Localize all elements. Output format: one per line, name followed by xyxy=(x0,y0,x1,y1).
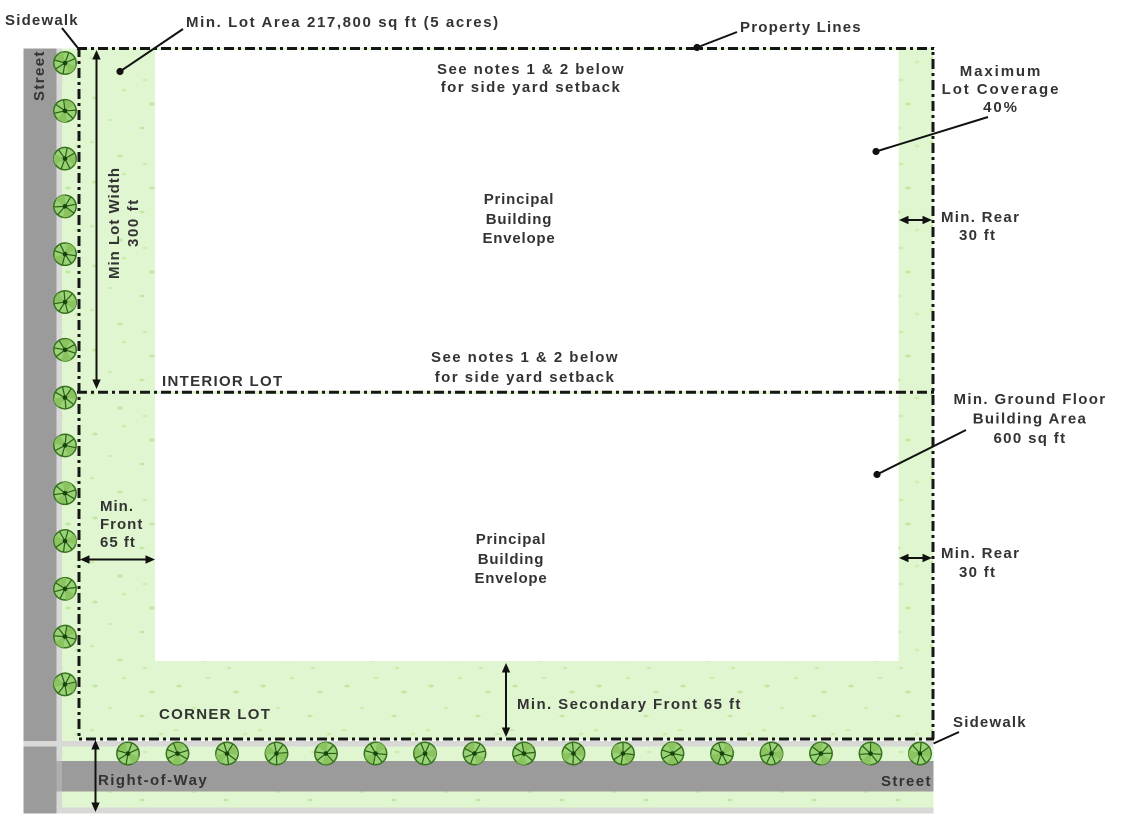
svg-text:Right-of-Way: Right-of-Way xyxy=(98,772,208,789)
svg-text:PrincipalBuildingEnvelope: PrincipalBuildingEnvelope xyxy=(482,191,555,247)
svg-text:Min. Lot Area 217,800 sq ft (5: Min. Lot Area 217,800 sq ft (5 acres) xyxy=(186,14,500,31)
svg-text:300 ft: 300 ft xyxy=(125,198,142,247)
svg-text:CORNER LOT: CORNER LOT xyxy=(159,706,271,723)
svg-text:PrincipalBuildingEnvelope: PrincipalBuildingEnvelope xyxy=(474,531,547,587)
svg-text:See notes 1 & 2 belowfor side: See notes 1 & 2 belowfor side yard setba… xyxy=(437,61,625,96)
svg-text:INTERIOR LOT: INTERIOR LOT xyxy=(162,373,283,390)
svg-text:Sidewalk: Sidewalk xyxy=(5,12,79,29)
svg-text:Property Lines: Property Lines xyxy=(740,19,862,36)
svg-text:Min Lot Width: Min Lot Width xyxy=(106,167,123,279)
svg-text:Street: Street xyxy=(31,50,48,101)
svg-text:Street: Street xyxy=(881,773,932,790)
svg-text:Min. Secondary Front 65 ft: Min. Secondary Front 65 ft xyxy=(517,696,742,713)
svg-text:Sidewalk: Sidewalk xyxy=(953,714,1027,731)
